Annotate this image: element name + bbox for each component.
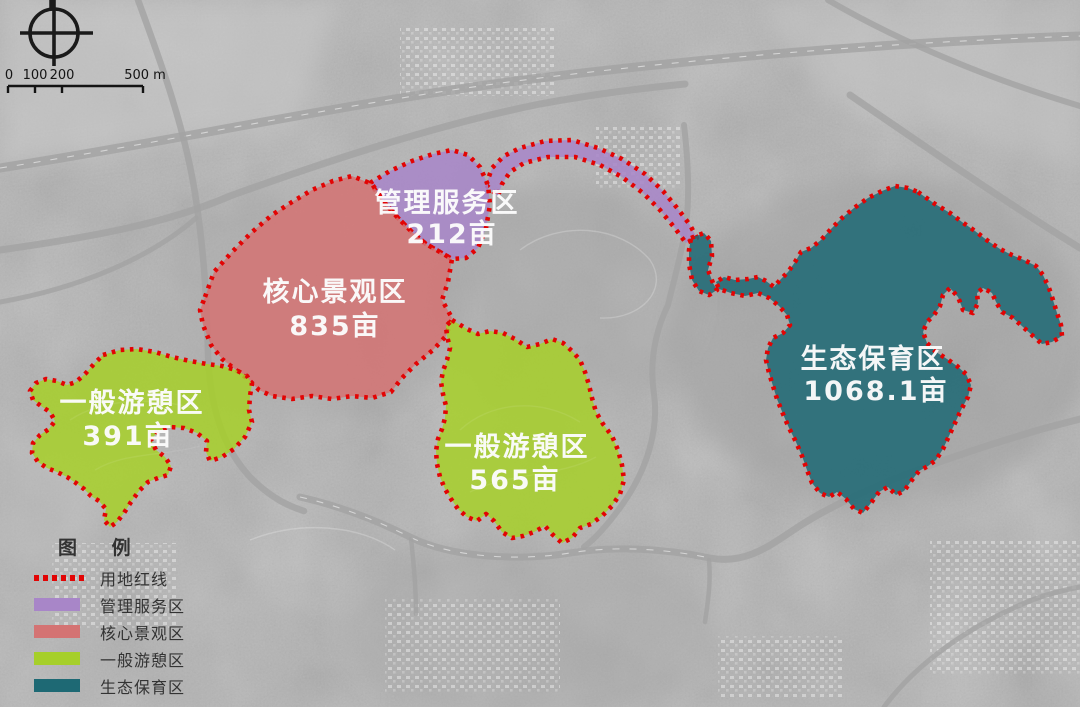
zone-area-management: 212亩 — [406, 218, 497, 250]
zone-label-management: 管理服务区 — [375, 188, 520, 219]
legend-swatch-management — [34, 598, 80, 611]
legend-item-recreation: 一般游憩区 — [34, 650, 185, 667]
legend-swatch-red-dotted-line-icon — [34, 575, 84, 581]
legend-item-core: 核心景观区 — [34, 623, 185, 640]
legend-item-red-line: 用地红线 — [34, 569, 185, 586]
legend-swatch-core — [34, 625, 80, 638]
zone-area-recreation-west: 391亩 — [82, 420, 173, 452]
legend-swatch-recreation — [34, 652, 80, 665]
legend-swatch-ecology — [34, 679, 80, 692]
legend-title: 图 例 — [58, 533, 185, 560]
legend-item-ecology: 生态保育区 — [34, 677, 185, 694]
zone-area-recreation-central: 565亩 — [469, 464, 560, 496]
zone-label-core: 核心景观区 — [263, 276, 408, 308]
legend-item-label: 管理服务区 — [100, 593, 185, 617]
legend-item-management: 管理服务区 — [34, 596, 185, 613]
scale-label-0: 0 — [5, 68, 13, 83]
zone-area-core: 835亩 — [289, 310, 380, 342]
scale-label-500m: 500 m — [124, 68, 166, 83]
legend-panel: 图 例 用地红线 管理服务区 核心景观区 一般游憩区 生态保育区 — [34, 533, 185, 704]
scale-label-100: 100 — [23, 68, 48, 83]
legend-item-label: 一般游憩区 — [100, 647, 185, 671]
zone-label-recreation-central: 一般游憩区 — [445, 431, 590, 463]
zone-label-recreation-west: 一般游憩区 — [60, 387, 205, 419]
zone-area-ecology: 1068.1亩 — [803, 375, 948, 407]
planning-map-page: 管理服务区 212亩 核心景观区 835亩 一般游憩区 391亩 一般游憩区 5… — [0, 0, 1080, 707]
legend-item-label: 生态保育区 — [100, 674, 185, 698]
zone-label-ecology: 生态保育区 — [801, 343, 946, 375]
scale-label-200: 200 — [50, 68, 75, 83]
legend-item-label: 核心景观区 — [100, 620, 185, 644]
legend-item-label: 用地红线 — [100, 566, 168, 590]
